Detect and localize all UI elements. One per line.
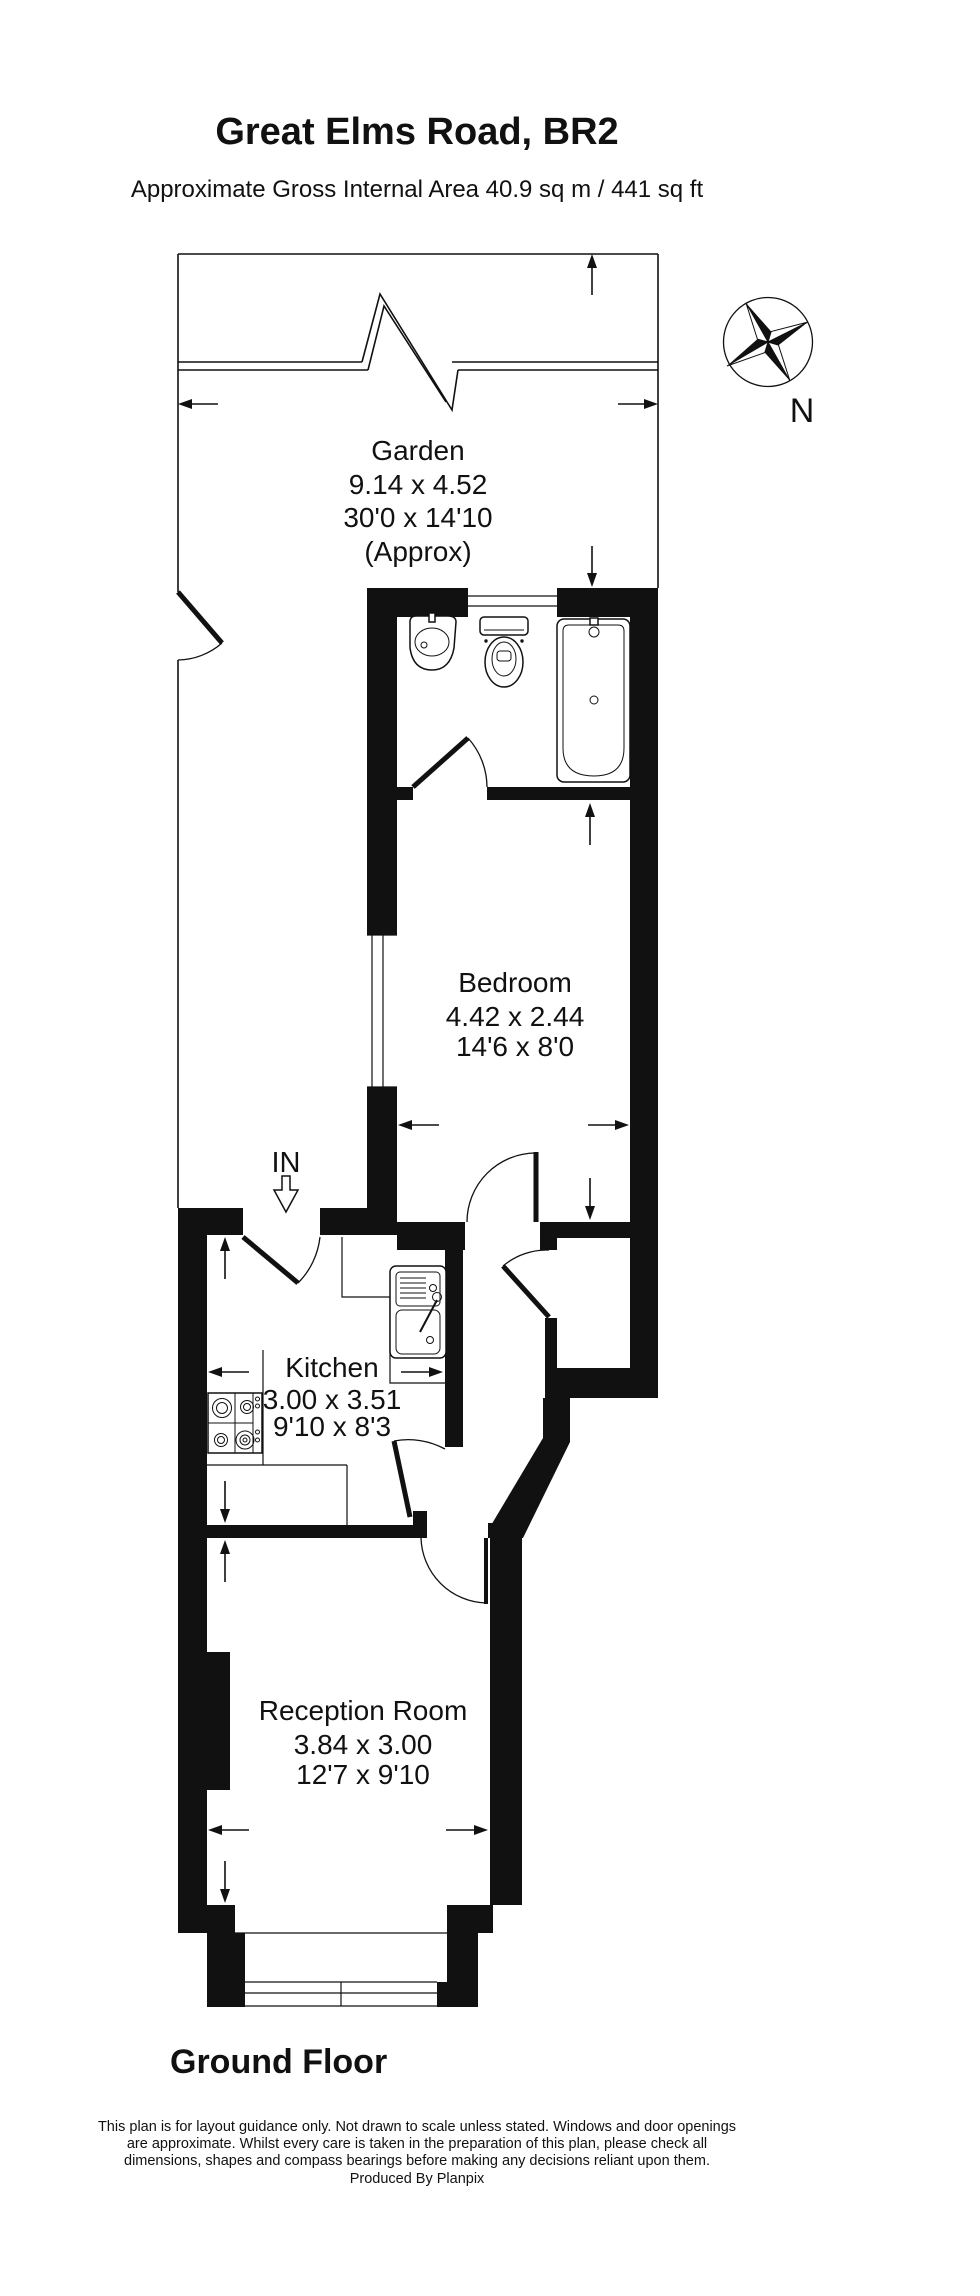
garden-dim-metric: 9.14 x 4.52 [349,469,488,500]
bedroom-door [467,1152,536,1222]
kitchen-door [394,1440,445,1517]
compass-rose-icon [724,298,813,387]
disclaimer-line-3: dimensions, shapes and compass bearings … [67,2153,767,2170]
toilet-icon [480,617,528,687]
reception-name: Reception Room [259,1695,468,1726]
kitchen-dim-imperial: 9'10 x 8'3 [273,1411,391,1442]
floorplan-page: Great Elms Road, BR2 Approximate Gross I… [0,0,980,2296]
compass-north-label: N [790,392,815,430]
stove-icon [208,1393,262,1453]
bedroom-dim-imperial: 14'6 x 8'0 [456,1031,574,1062]
bedroom-window [367,935,397,1087]
disclaimer-line-4: Produced By Planpix [67,2171,767,2188]
garden-label: Garden 9.14 x 4.52 30'0 x 14'10 (Approx) [343,435,492,567]
sink-icon [410,613,456,670]
disclaimer: This plan is for layout guidance only. N… [67,2119,767,2188]
disclaimer-line-2: are approximate. Whilst every care is ta… [67,2136,767,2153]
reception-door [421,1538,486,1604]
garden-dim-imperial: 30'0 x 14'10 [343,502,492,533]
garden-name: Garden [371,435,464,466]
kitchen-sink-icon [390,1266,446,1358]
kitchen-label: Kitchen 3.00 x 3.51 9'10 x 8'3 [263,1352,402,1442]
bedroom-name: Bedroom [458,967,572,998]
entrance-door [243,1237,320,1283]
reception-dim-imperial: 12'7 x 9'10 [296,1759,430,1790]
store-door [503,1250,549,1317]
reception-label: Reception Room 3.84 x 3.00 12'7 x 9'10 [259,1695,468,1790]
kitchen-name: Kitchen [285,1352,378,1383]
fence-break-icon [362,294,458,410]
bathtub-icon [557,618,630,782]
entrance-arrow-icon [274,1176,298,1212]
disclaimer-line-1: This plan is for layout guidance only. N… [67,2119,767,2136]
bathroom-door [413,738,487,787]
bay-window [235,1933,447,2006]
diagonal-wall [490,1438,570,1538]
bedroom-label: Bedroom 4.42 x 2.44 14'6 x 8'0 [446,967,585,1062]
floor-name: Ground Floor [170,2043,387,2082]
chimney-breast [207,1652,230,1790]
bathroom-window [468,596,557,606]
garden-approx-note: (Approx) [364,536,471,567]
garden-gate [178,592,222,660]
floor-plan-drawing: N Garden 9.14 x 4.52 30'0 x 14'10 (Appro… [0,0,980,2296]
bedroom-dim-metric: 4.42 x 2.44 [446,1001,585,1032]
entrance-in-label: IN [272,1147,301,1179]
reception-dim-metric: 3.84 x 3.00 [294,1729,433,1760]
